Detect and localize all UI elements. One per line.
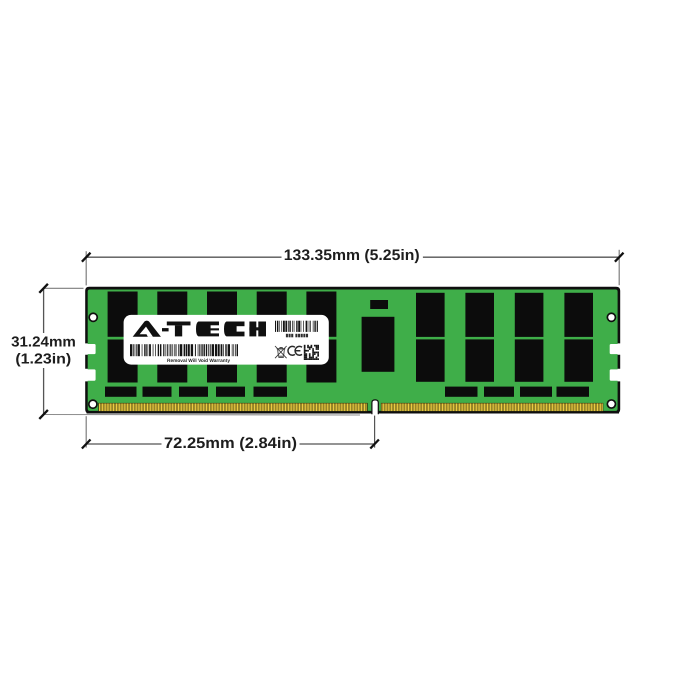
svg-text:133.35mm (5.25in): 133.35mm (5.25in) — [284, 247, 420, 264]
svg-text:(1.23in): (1.23in) — [15, 351, 71, 367]
svg-text:72.25mm (2.84in): 72.25mm (2.84in) — [164, 435, 297, 452]
svg-text:Removal Will Void Warranty: Removal Will Void Warranty — [167, 358, 230, 364]
svg-text:31.24mm: 31.24mm — [11, 334, 76, 350]
